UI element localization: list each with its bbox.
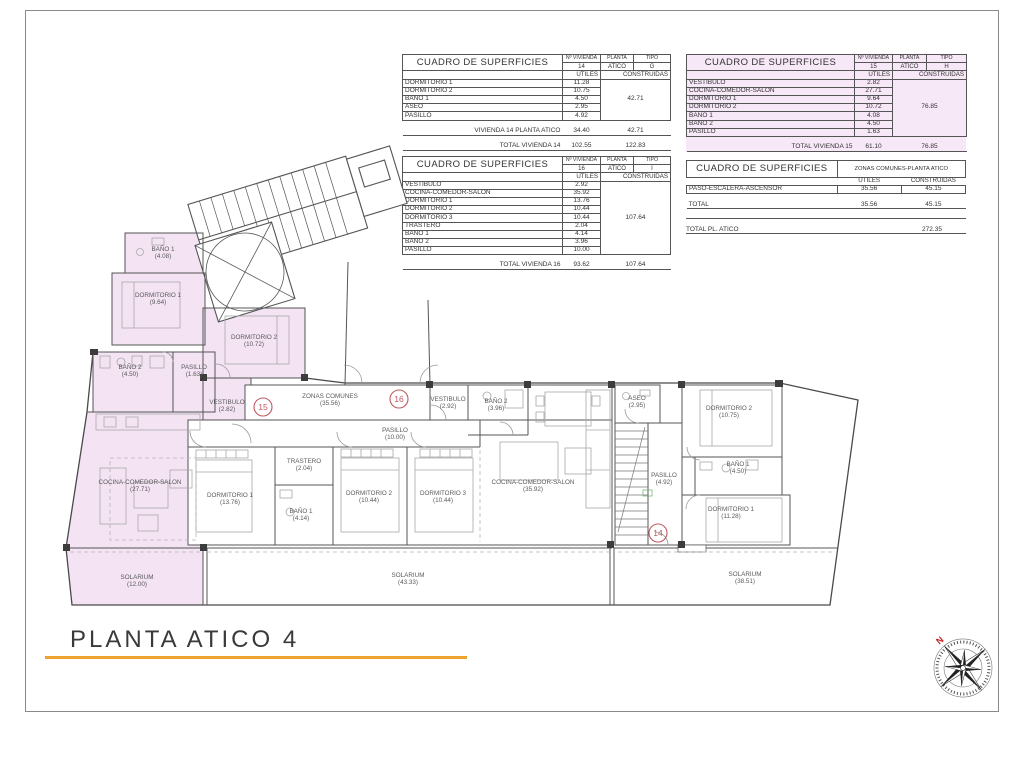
room-area: (4.50) (122, 371, 138, 378)
room-label: PASILLO (382, 427, 408, 434)
room-area: (10.72) (244, 341, 264, 348)
rect-shape (775, 380, 783, 387)
room-area: (10.44) (359, 497, 379, 504)
rect-shape (93, 352, 173, 412)
room-label: COCINA-COMEDOR-SALON (492, 479, 575, 486)
rect-shape (90, 349, 98, 355)
room-label: PASILLO (181, 364, 207, 371)
room-area: (2.82) (219, 406, 235, 413)
room-label: TRASTERO (287, 458, 321, 465)
room-area: (10.44) (433, 497, 453, 504)
room-label: ZONAS COMUNES (302, 393, 358, 400)
room-area: (27.71) (130, 486, 150, 493)
rect-shape (301, 374, 308, 381)
room-area: (38.51) (735, 578, 755, 585)
rect-shape (682, 495, 790, 545)
room-label: DORMITORIO 2 (706, 405, 753, 412)
room-label: PASILLO (651, 472, 677, 479)
title-underline (45, 656, 467, 659)
room-label: BAÑO 2 (484, 396, 508, 405)
unit-marker-16: 16 (394, 394, 404, 404)
room-label: BAÑO 1 (726, 459, 750, 468)
path-shape (420, 365, 438, 383)
room-area: (2.95) (629, 402, 645, 409)
room-area: (4.50) (730, 468, 746, 475)
compass-north-label: N (934, 635, 945, 647)
compass-rose: N (914, 618, 1003, 709)
room-label: ASEO (628, 395, 646, 402)
drawing-sheet: CUADRO DE SUPERFICIES Nº VIVIENDA PLANTA… (0, 0, 1024, 768)
room-label: DORMITORIO 1 (207, 492, 254, 499)
room-area: (43.33) (398, 579, 418, 586)
room-label: COCINA-COMEDOR-SALON (99, 479, 182, 486)
room-area: (35.92) (523, 486, 543, 493)
room-area: (11.28) (721, 513, 740, 520)
room-area: (1.63) (186, 371, 202, 378)
line-shape (428, 300, 430, 385)
unit-marker-14: 14 (653, 528, 663, 538)
room-label: DORMITORIO 2 (346, 490, 393, 497)
room-label: SOLARIUM (729, 571, 762, 578)
rect-shape (112, 273, 205, 345)
rect-shape (63, 544, 70, 551)
unit-marker-15: 15 (258, 402, 268, 412)
room-label: BAÑO 2 (118, 362, 142, 371)
rect-shape (200, 544, 207, 551)
room-area: (13.76) (220, 499, 240, 506)
line-shape (345, 262, 348, 385)
rect-shape (608, 381, 615, 388)
path-shape (344, 365, 362, 383)
room-label: VESTIBULO (209, 399, 244, 406)
rect-shape (678, 381, 685, 388)
room-area: (2.04) (296, 465, 312, 472)
room-label: SOLARIUM (121, 574, 154, 581)
room-area: (12.00) (127, 581, 147, 588)
room-label: BAÑO 1 (151, 244, 175, 253)
room-label: DORMITORIO 1 (135, 292, 182, 299)
room-area: (2.92) (440, 403, 456, 410)
room-label: SOLARIUM (392, 572, 425, 579)
room-area: (4.14) (293, 515, 309, 522)
room-label: DORMITORIO 3 (420, 490, 467, 497)
room-label: DORMITORIO 2 (231, 334, 278, 341)
rect-shape (607, 541, 614, 548)
room-label: DORMITORIO 1 (708, 506, 755, 513)
room-area: (4.92) (656, 479, 672, 486)
room-label: BAÑO 1 (289, 506, 313, 515)
room-area: (9.64) (150, 299, 166, 306)
rect-shape (426, 381, 433, 388)
room-label: VESTIBULO (430, 396, 465, 403)
sheet-title: PLANTA ATICO 4 (70, 626, 299, 654)
room-area: (35.56) (320, 400, 340, 407)
rect-shape (678, 541, 685, 548)
room-area: (10.00) (385, 434, 405, 441)
room-area: (3.96) (488, 405, 504, 412)
room-area: (4.08) (155, 253, 171, 260)
room-area: (10.75) (719, 412, 739, 419)
rect-shape (524, 381, 531, 388)
